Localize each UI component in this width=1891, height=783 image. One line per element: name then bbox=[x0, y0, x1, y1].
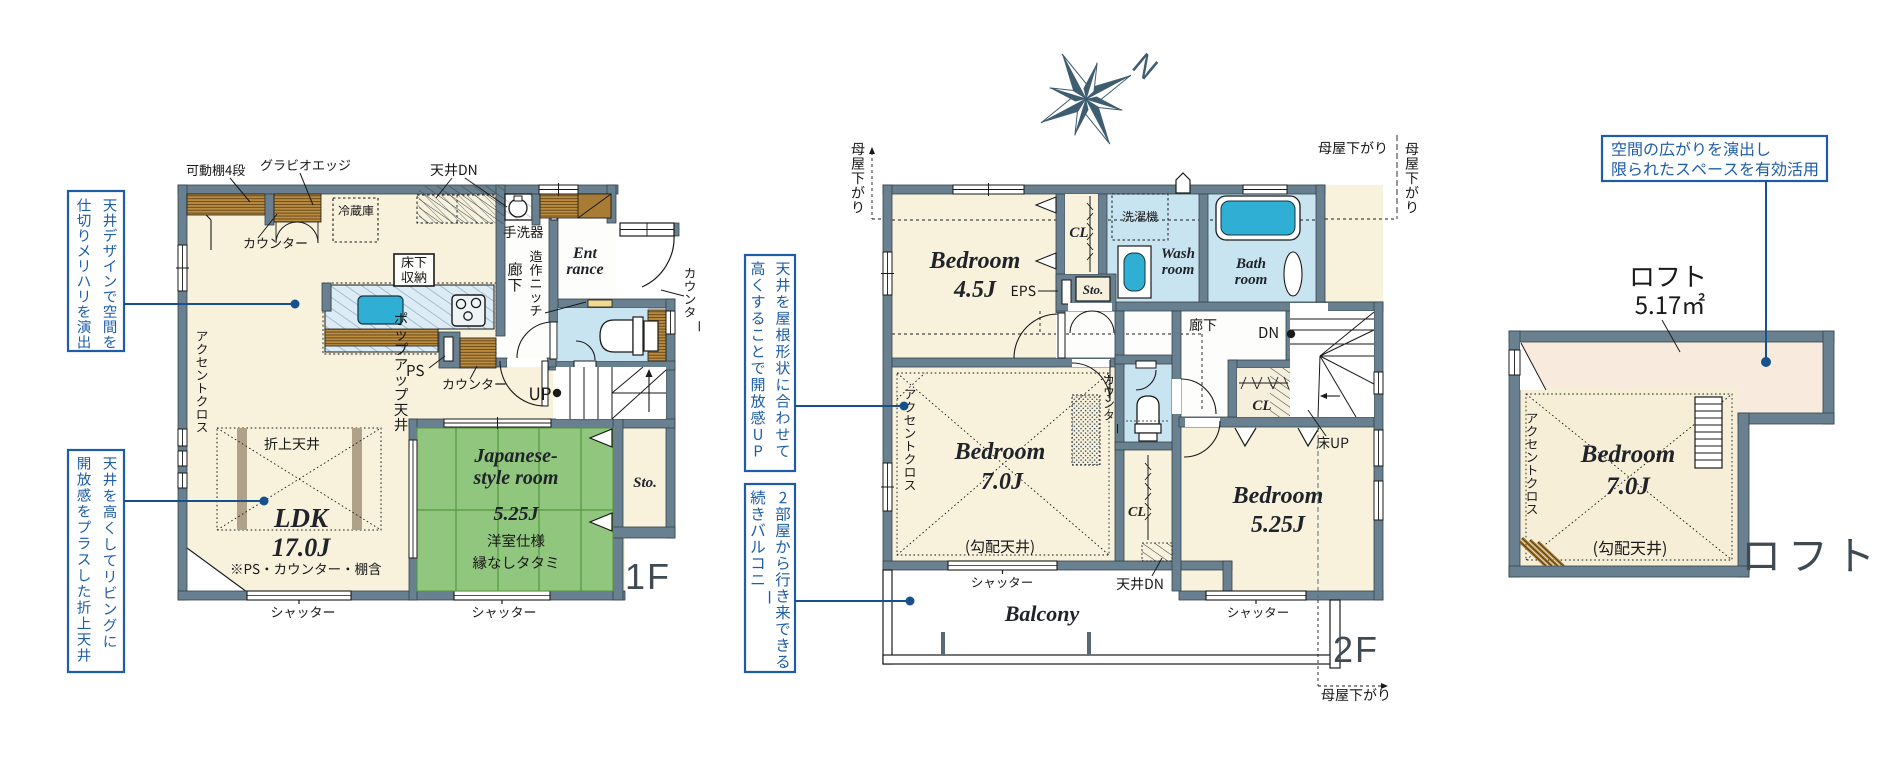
svg-text:7.0J: 7.0J bbox=[1606, 473, 1651, 500]
svg-text:CL: CL bbox=[1252, 398, 1271, 414]
svg-text:Japanese-: Japanese- bbox=[473, 445, 557, 467]
svg-text:Balcony: Balcony bbox=[1004, 601, 1080, 626]
svg-text:Bedroom: Bedroom bbox=[1580, 441, 1675, 468]
svg-text:CL: CL bbox=[1069, 225, 1088, 241]
svg-text:CL: CL bbox=[1128, 505, 1146, 520]
svg-text:7.0J: 7.0J bbox=[981, 469, 1024, 495]
svg-text:Bedroom: Bedroom bbox=[929, 248, 1021, 274]
svg-text:1F: 1F bbox=[625, 556, 671, 597]
svg-text:4.5J: 4.5J bbox=[953, 277, 997, 303]
svg-text:17.0J: 17.0J bbox=[272, 533, 332, 562]
svg-text:LDK: LDK bbox=[273, 503, 330, 533]
svg-text:Bath: Bath bbox=[1235, 256, 1266, 272]
svg-text:Ent: Ent bbox=[572, 245, 598, 262]
svg-text:2F: 2F bbox=[1333, 629, 1379, 670]
svg-text:5.25J: 5.25J bbox=[1251, 512, 1306, 538]
svg-text:rance: rance bbox=[566, 261, 603, 278]
svg-text:Wash: Wash bbox=[1161, 246, 1195, 262]
svg-text:room: room bbox=[1235, 272, 1268, 288]
svg-text:room: room bbox=[1162, 262, 1195, 278]
svg-text:Bedroom: Bedroom bbox=[954, 439, 1046, 465]
svg-text:Sto.: Sto. bbox=[1083, 282, 1104, 297]
svg-text:5.25J: 5.25J bbox=[494, 503, 540, 525]
svg-text:Bedroom: Bedroom bbox=[1232, 483, 1324, 509]
svg-text:style room: style room bbox=[473, 467, 559, 489]
svg-text:Sto.: Sto. bbox=[633, 475, 657, 491]
